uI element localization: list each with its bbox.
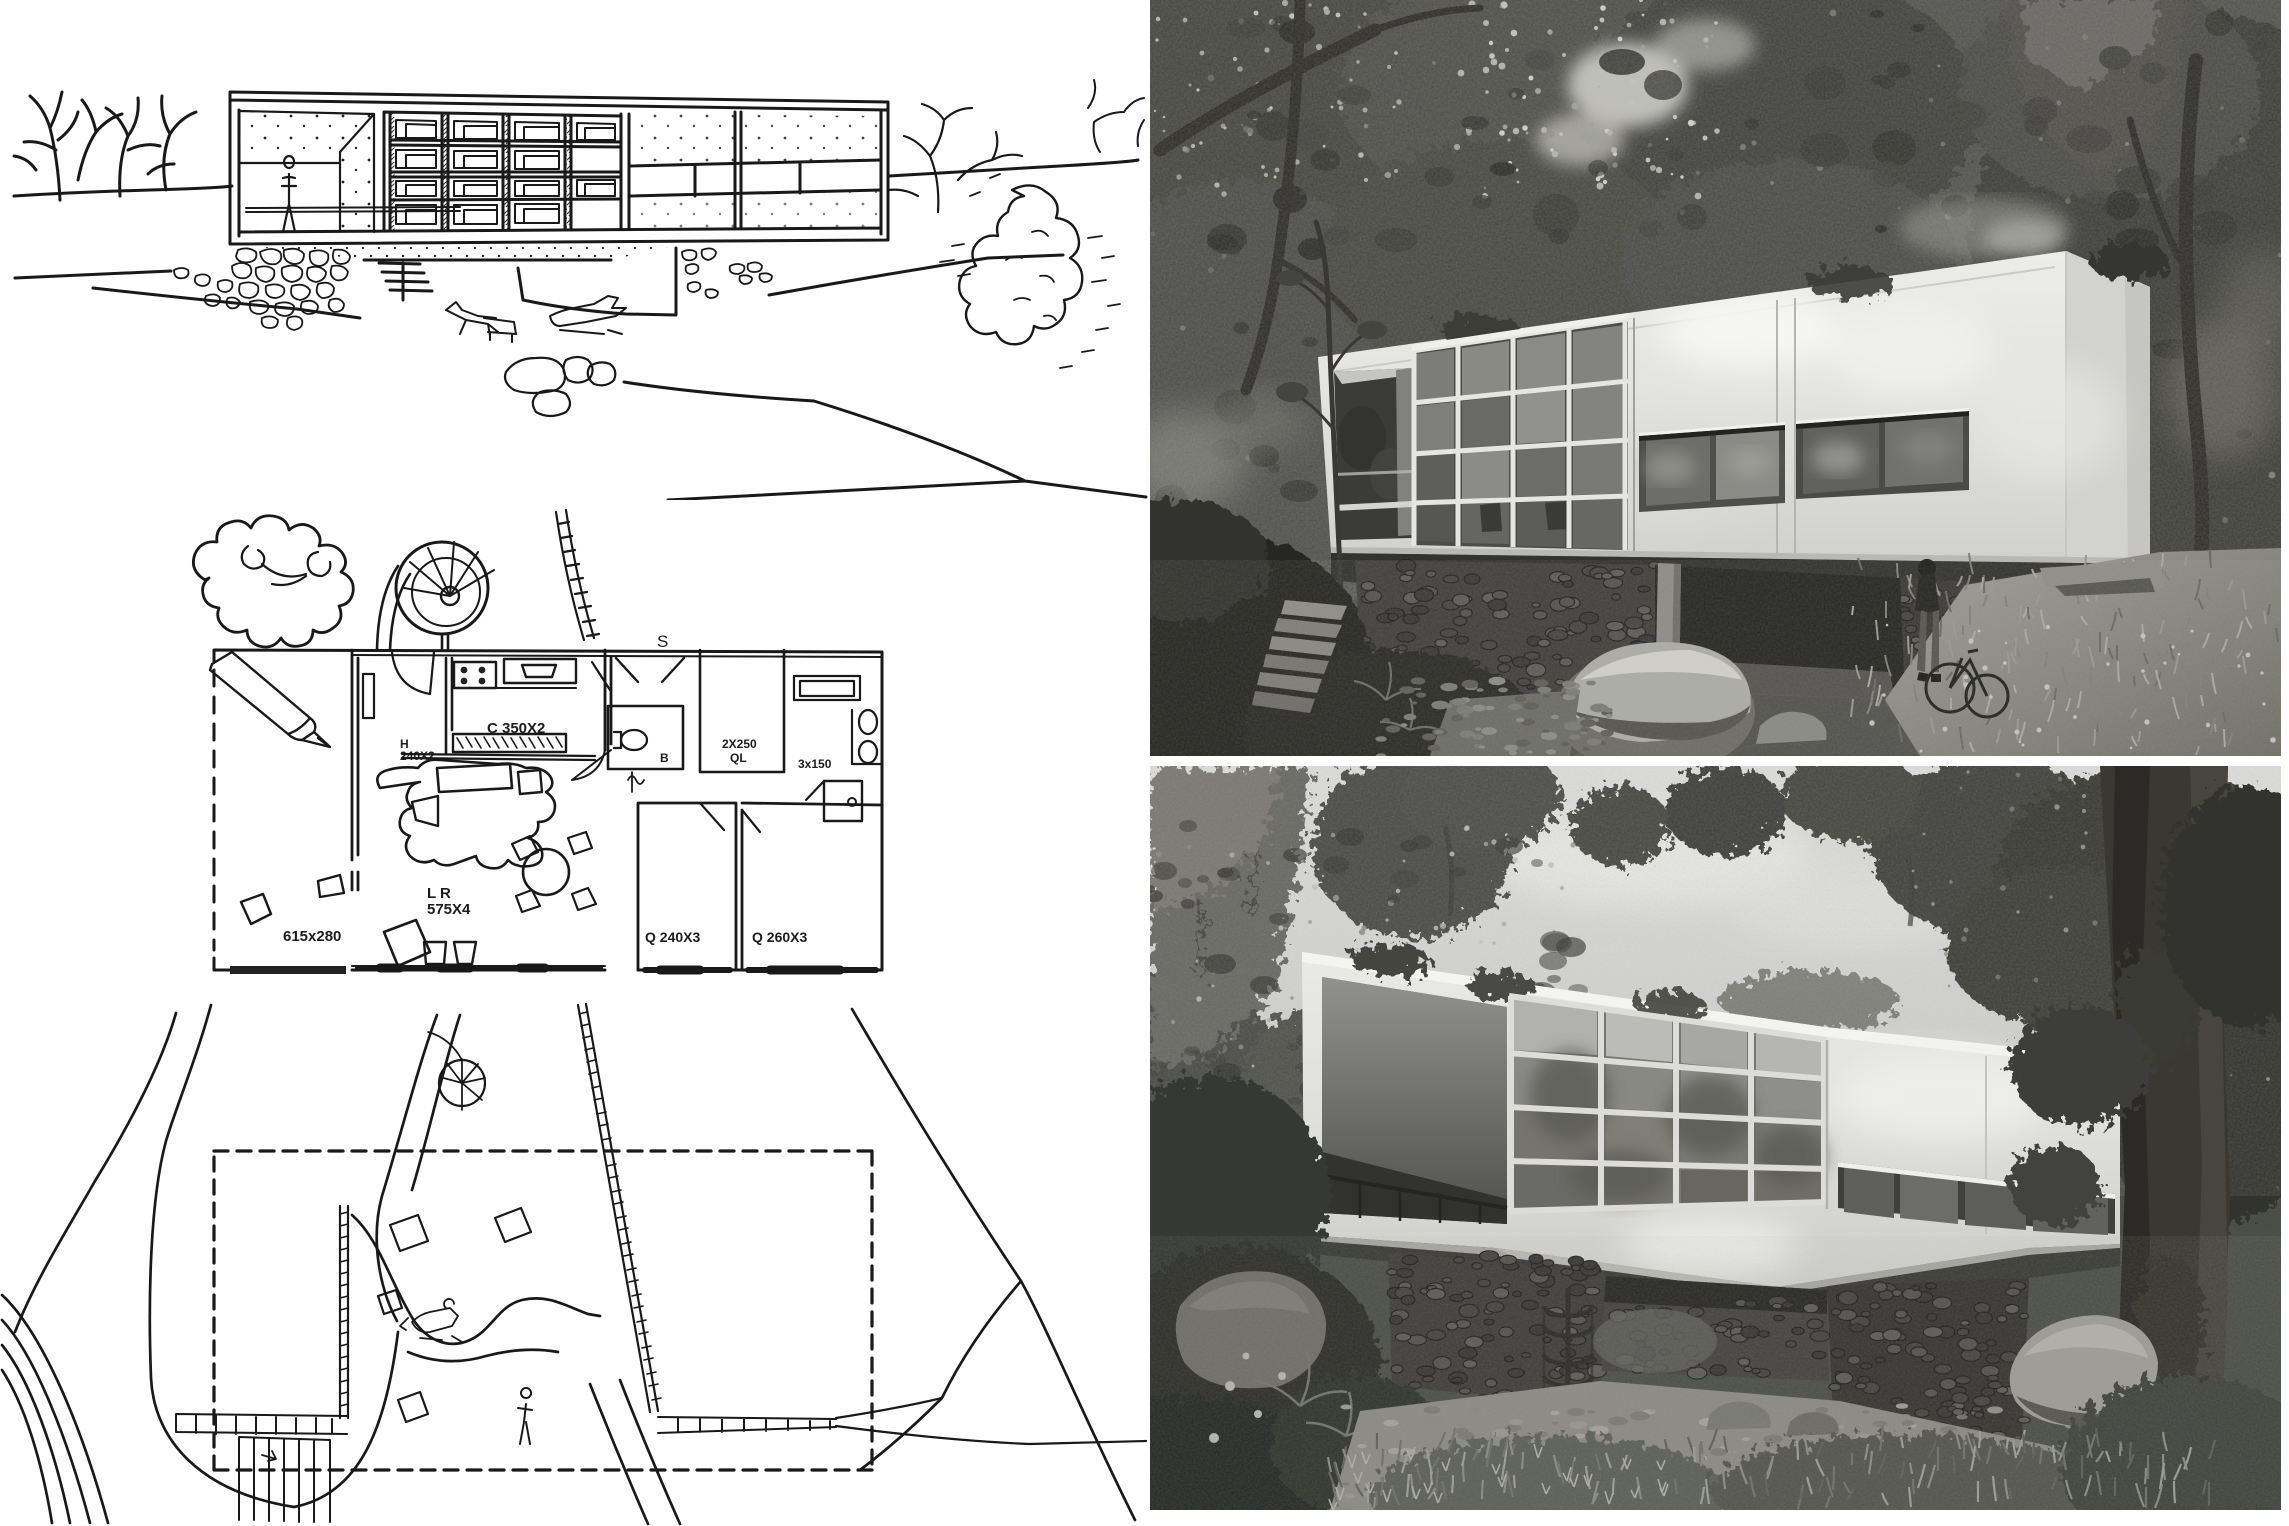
svg-text:3x150: 3x150: [798, 757, 832, 771]
svg-text:B: B: [660, 751, 669, 765]
svg-text:Q 260X3: Q 260X3: [752, 929, 807, 945]
svg-text:575X4: 575X4: [427, 901, 471, 918]
svg-text:615x280: 615x280: [283, 928, 341, 945]
svg-text:L R: L R: [427, 885, 451, 902]
svg-text:Q 240X3: Q 240X3: [645, 929, 700, 945]
svg-text:S: S: [657, 632, 668, 651]
svg-text:2X250: 2X250: [722, 737, 757, 751]
svg-text:QL: QL: [730, 751, 747, 765]
